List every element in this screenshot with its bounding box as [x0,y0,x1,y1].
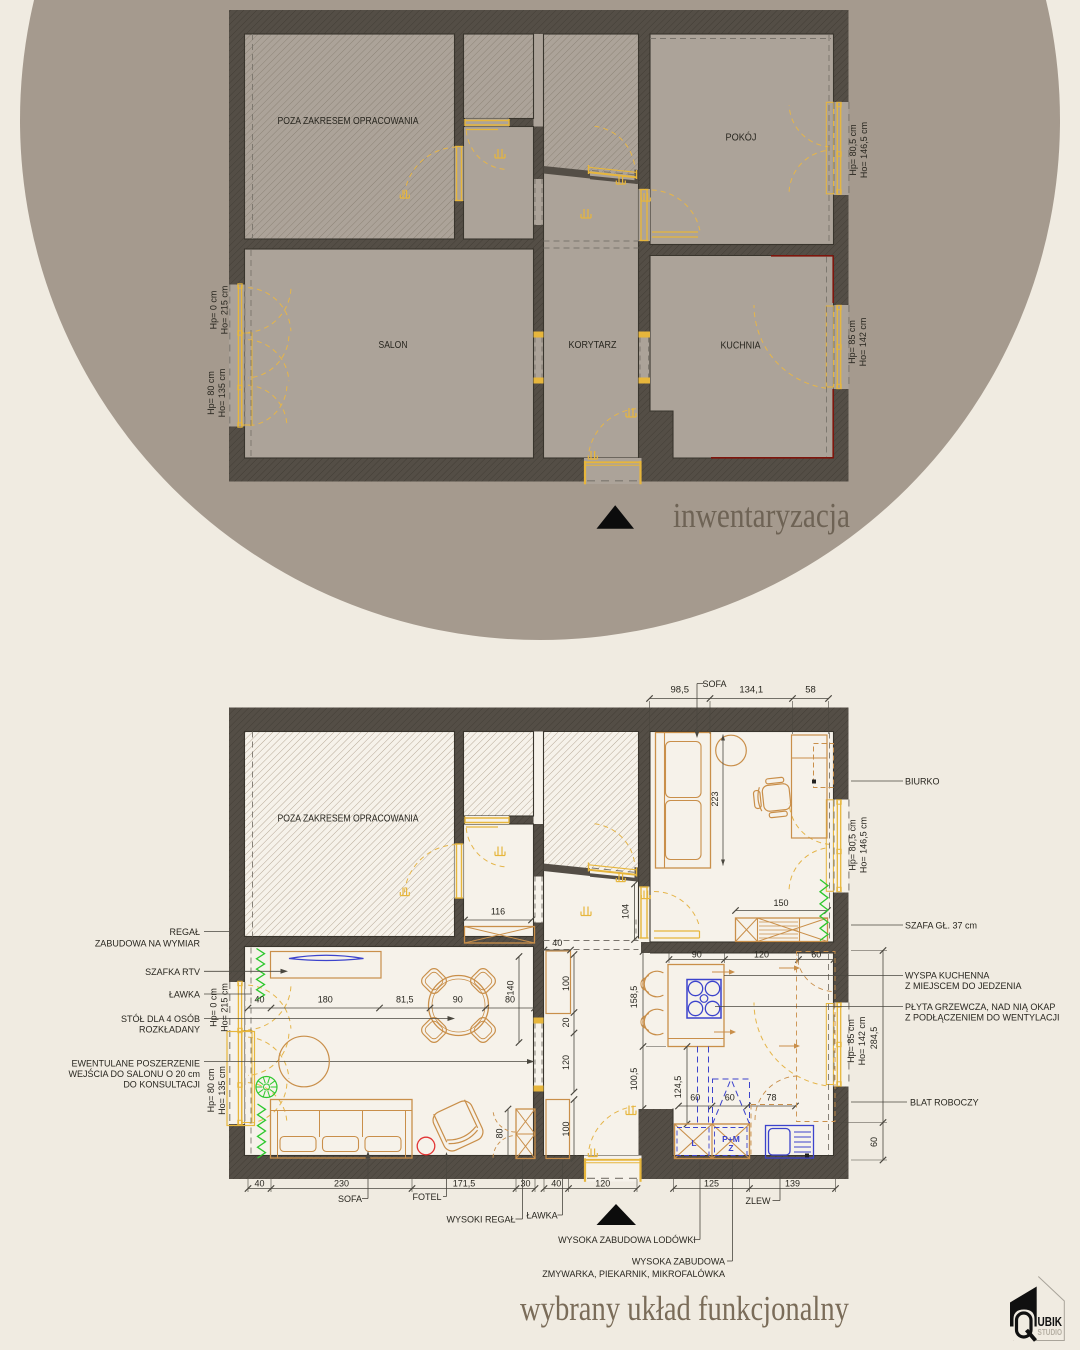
svg-text:120: 120 [595,1179,610,1189]
svg-text:WYSOKA ZABUDOWA LODÓWKI: WYSOKA ZABUDOWA LODÓWKI [558,1235,696,1245]
svg-text:150: 150 [773,898,788,908]
svg-text:Hp= 85 cm: Hp= 85 cm [846,1019,856,1063]
svg-text:40: 40 [254,1179,264,1189]
svg-text:UBIK: UBIK [1038,1315,1063,1329]
svg-text:125: 125 [704,1179,719,1189]
svg-text:L: L [691,1138,696,1148]
svg-text:134,1: 134,1 [739,685,763,696]
svg-text:100,5: 100,5 [629,1068,639,1091]
svg-text:40: 40 [552,938,562,948]
svg-text:Ho= 135 cm: Ho= 135 cm [217,1066,227,1115]
svg-text:SOFA: SOFA [338,1194,362,1204]
svg-text:DO KONSULTACJI: DO KONSULTACJI [123,1080,200,1090]
svg-text:Z: Z [728,1143,733,1153]
svg-text:Ho= 142 cm: Ho= 142 cm [858,318,868,367]
svg-text:98,5: 98,5 [671,685,690,696]
svg-text:EWENTULANE POSZERZENIE: EWENTULANE POSZERZENIE [71,1059,200,1069]
svg-text:120: 120 [754,950,769,960]
svg-text:ROZKŁADANY: ROZKŁADANY [139,1025,200,1035]
svg-text:Ho= 146,5 cm: Ho= 146,5 cm [859,122,869,178]
svg-text:20: 20 [561,1017,571,1027]
svg-text:wybrany układ funkcjonalny: wybrany układ funkcjonalny [520,1289,849,1328]
svg-text:SOFA: SOFA [702,679,726,689]
svg-text:60: 60 [690,1093,700,1103]
svg-text:Hp= 80 cm: Hp= 80 cm [206,371,216,415]
svg-text:100: 100 [561,976,571,991]
svg-text:Ho= 142 cm: Ho= 142 cm [857,1017,867,1066]
svg-text:58: 58 [805,685,816,696]
svg-text:STUDIO: STUDIO [1038,1328,1063,1337]
svg-text:SZAFKA RTV: SZAFKA RTV [145,967,200,977]
svg-text:78: 78 [766,1093,776,1103]
svg-text:60: 60 [725,1093,735,1103]
svg-text:139: 139 [785,1179,800,1189]
svg-text:Z MIEJSCEM DO JEDZENIA: Z MIEJSCEM DO JEDZENIA [905,981,1022,991]
svg-text:80: 80 [495,1128,505,1138]
svg-text:POZA ZAKRESEM OPRACOWANIA: POZA ZAKRESEM OPRACOWANIA [278,814,419,825]
svg-text:60: 60 [811,950,821,960]
svg-text:30: 30 [520,1179,530,1189]
svg-text:WYSOKA ZABUDOWA: WYSOKA ZABUDOWA [632,1257,725,1267]
svg-text:60: 60 [869,1137,879,1147]
svg-text:223: 223 [710,791,720,806]
svg-text:PŁYTA GRZEWCZA, NAD NIĄ OKAP: PŁYTA GRZEWCZA, NAD NIĄ OKAP [905,1002,1055,1012]
svg-text:104: 104 [621,904,631,919]
svg-text:ZLEW: ZLEW [745,1196,771,1206]
svg-text:120: 120 [561,1055,571,1070]
svg-text:Ho= 215 cm: Ho= 215 cm [220,983,230,1032]
svg-text:SALON: SALON [379,340,408,351]
svg-text:Z PODŁĄCZENIEM DO WENTYLACJI: Z PODŁĄCZENIEM DO WENTYLACJI [905,1013,1060,1023]
svg-text:ŁAWKA: ŁAWKA [169,990,200,1000]
svg-text:SZAFA GŁ. 37 cm: SZAFA GŁ. 37 cm [905,921,977,931]
svg-text:284,5: 284,5 [869,1027,879,1050]
svg-text:ŁAWKA: ŁAWKA [526,1211,557,1221]
svg-text:ZMYWARKA, PIEKARNIK, MIKROFALÓ: ZMYWARKA, PIEKARNIK, MIKROFALÓWKA [542,1269,725,1279]
svg-text:40: 40 [551,1179,561,1189]
svg-text:POZA ZAKRESEM OPRACOWANIA: POZA ZAKRESEM OPRACOWANIA [278,116,419,127]
svg-text:Hp= 0 cm: Hp= 0 cm [209,988,219,1027]
svg-text:BLAT ROBOCZY: BLAT ROBOCZY [910,1098,979,1108]
svg-text:KORYTARZ: KORYTARZ [569,340,617,351]
svg-text:Ho= 135 cm: Ho= 135 cm [217,369,227,418]
svg-text:171,5: 171,5 [453,1179,476,1189]
svg-text:124,5: 124,5 [673,1076,683,1099]
svg-text:90: 90 [453,995,463,1005]
svg-text:Ho= 146,5 cm: Ho= 146,5 cm [859,817,869,873]
svg-text:REGAŁ: REGAŁ [169,927,200,937]
svg-text:KUCHNIA: KUCHNIA [721,341,761,352]
svg-text:140: 140 [506,980,516,995]
svg-text:Hp= 80,5 cm: Hp= 80,5 cm [848,124,858,175]
svg-text:Hp= 80,5 cm: Hp= 80,5 cm [848,819,858,870]
svg-text:116: 116 [491,907,505,917]
svg-text:Hp= 85 cm: Hp= 85 cm [847,320,857,364]
svg-text:180: 180 [318,995,333,1005]
svg-text:100: 100 [561,1121,571,1136]
svg-text:Hp= 80 cm: Hp= 80 cm [206,1069,216,1113]
svg-text:inwentaryzacja: inwentaryzacja [673,496,850,535]
svg-text:Ho= 215 cm: Ho= 215 cm [220,286,230,335]
svg-text:POKÓJ: POKÓJ [726,131,757,144]
svg-text:81,5: 81,5 [396,995,414,1005]
svg-text:40: 40 [254,995,264,1005]
svg-text:WEJŚCIA DO SALONU O 20 cm: WEJŚCIA DO SALONU O 20 cm [68,1068,200,1079]
svg-text:ZABUDOWA NA WYMIAR: ZABUDOWA NA WYMIAR [95,939,201,949]
svg-text:BIURKO: BIURKO [905,777,940,787]
svg-text:230: 230 [334,1179,349,1189]
svg-text:STÓŁ DLA 4 OSÓB: STÓŁ DLA 4 OSÓB [121,1014,200,1024]
svg-text:WYSPA KUCHENNA: WYSPA KUCHENNA [905,971,989,981]
svg-text:158,5: 158,5 [629,986,639,1009]
svg-text:FOTEL: FOTEL [412,1192,441,1202]
svg-text:90: 90 [692,950,702,960]
svg-text:Hp= 0 cm: Hp= 0 cm [209,291,219,330]
svg-text:WYSOKI REGAŁ: WYSOKI REGAŁ [446,1215,515,1225]
